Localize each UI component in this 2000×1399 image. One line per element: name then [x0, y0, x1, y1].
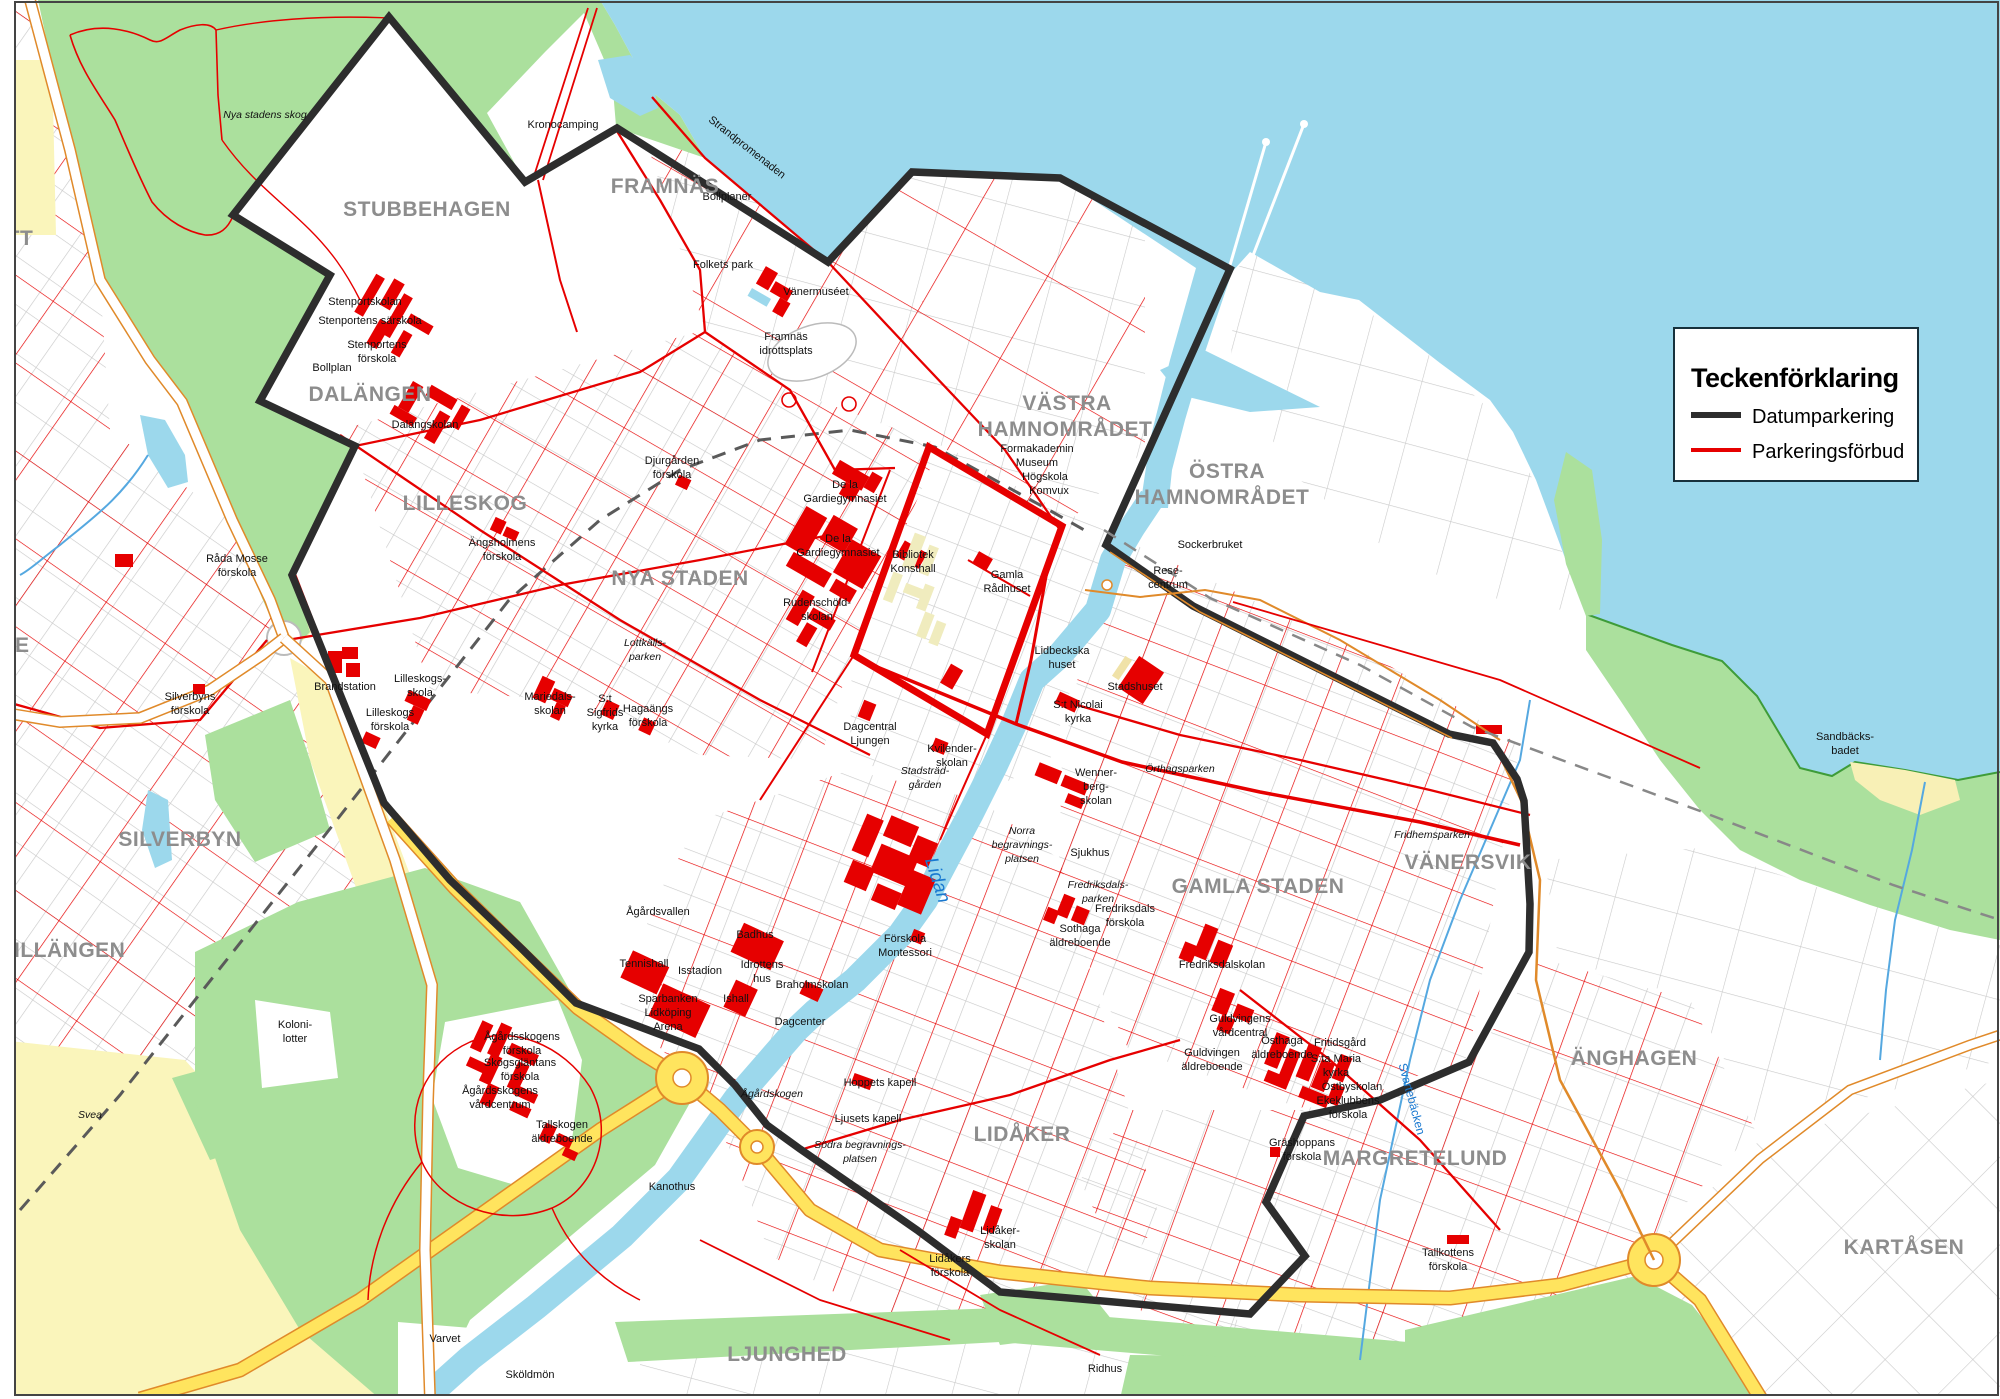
svg-text:Kronocamping: Kronocamping — [528, 119, 599, 131]
svg-text:Stenportens särskola: Stenportens särskola — [318, 315, 422, 327]
svg-text:Ågårdsskogens: Ågårdsskogens — [484, 1030, 560, 1043]
svg-text:Östbyskolan: Östbyskolan — [1322, 1081, 1383, 1093]
svg-text:förskola: förskola — [358, 353, 397, 365]
svg-text:förskola: förskola — [218, 567, 257, 579]
svg-text:MARGRETELUND: MARGRETELUND — [1323, 1147, 1508, 1170]
svg-text:Gamla: Gamla — [991, 569, 1024, 581]
svg-text:Rådhuset: Rådhuset — [983, 583, 1030, 595]
svg-text:äldreboende: äldreboende — [1049, 937, 1110, 949]
svg-text:Bollplan: Bollplan — [312, 362, 351, 374]
svg-text:Ridhus: Ridhus — [1088, 1363, 1123, 1375]
svg-text:parken: parken — [628, 651, 661, 663]
svg-text:Fredriksdals-: Fredriksdals- — [1068, 879, 1129, 891]
svg-text:Fredriksdals: Fredriksdals — [1095, 903, 1155, 915]
svg-text:badet: badet — [1831, 745, 1859, 757]
svg-text:Folkets park: Folkets park — [693, 259, 753, 271]
svg-text:Tallskogen: Tallskogen — [536, 1119, 588, 1131]
svg-text:Stenportskolan: Stenportskolan — [328, 296, 401, 308]
svg-text:S:ta Maria: S:ta Maria — [1311, 1053, 1362, 1065]
svg-text:förskola: förskola — [171, 705, 210, 717]
svg-text:Isstadion: Isstadion — [678, 965, 722, 977]
svg-text:huset: huset — [1049, 659, 1076, 671]
svg-text:STUBBEHAGEN: STUBBEHAGEN — [343, 198, 511, 221]
svg-text:Lilleskogs: Lilleskogs — [366, 707, 415, 719]
svg-text:gården: gården — [909, 779, 942, 791]
svg-text:berg-: berg- — [1083, 781, 1109, 793]
svg-text:Sothaga: Sothaga — [1060, 923, 1102, 935]
svg-text:Djurgården: Djurgården — [645, 455, 699, 467]
svg-text:Sandbäcks-: Sandbäcks- — [1816, 731, 1874, 743]
svg-text:förskola: förskola — [1283, 1151, 1322, 1163]
svg-text:Kvilender-: Kvilender- — [927, 743, 977, 755]
svg-text:Svea: Svea — [78, 1109, 102, 1121]
svg-text:Östhaga: Östhaga — [1261, 1035, 1303, 1047]
svg-text:kyrka: kyrka — [1323, 1067, 1350, 1079]
svg-text:Stadsträd-: Stadsträd- — [901, 765, 950, 777]
svg-text:Sköldmön: Sköldmön — [506, 1369, 555, 1381]
svg-text:förskola: förskola — [629, 717, 668, 729]
svg-text:De la: De la — [825, 533, 852, 545]
svg-text:förskola: förskola — [653, 469, 692, 481]
svg-text:Koloni-: Koloni- — [278, 1019, 313, 1031]
svg-text:Guldvingens: Guldvingens — [1209, 1013, 1271, 1025]
svg-text:VÄSTRA: VÄSTRA — [1022, 392, 1111, 415]
svg-text:förskola: förskola — [503, 1045, 542, 1057]
svg-text:Lottkälls-: Lottkälls- — [624, 637, 667, 649]
svg-text:Rudenschöld-: Rudenschöld- — [783, 597, 851, 609]
svg-text:Örthagsparken: Örthagsparken — [1145, 763, 1215, 775]
svg-text:Parkeringsförbud: Parkeringsförbud — [1752, 441, 1904, 463]
svg-text:Stenportens: Stenportens — [347, 339, 407, 351]
svg-text:Sparbanken: Sparbanken — [638, 993, 697, 1005]
svg-text:platsen: platsen — [1004, 853, 1039, 865]
svg-text:lotter: lotter — [283, 1033, 308, 1045]
svg-text:Hoppets kapell: Hoppets kapell — [844, 1077, 917, 1089]
svg-text:Ljungen: Ljungen — [850, 735, 889, 747]
svg-text:Dagcenter: Dagcenter — [775, 1016, 826, 1028]
svg-text:vårdcentral: vårdcentral — [1213, 1027, 1267, 1039]
svg-text:Bollplaner: Bollplaner — [703, 191, 752, 203]
svg-text:Lidköping: Lidköping — [644, 1007, 691, 1019]
svg-text:Dalängskolan: Dalängskolan — [392, 419, 459, 431]
svg-text:Formakademin: Formakademin — [1000, 443, 1073, 455]
svg-text:Montessori: Montessori — [878, 947, 932, 959]
svg-text:Silverbyns: Silverbyns — [165, 691, 216, 703]
svg-text:Ekeklubbens: Ekeklubbens — [1317, 1095, 1380, 1107]
svg-text:Tennishall: Tennishall — [620, 958, 669, 970]
svg-text:förskola: förskola — [1106, 917, 1145, 929]
svg-text:NYA STADEN: NYA STADEN — [611, 567, 748, 590]
svg-text:skolan: skolan — [534, 705, 566, 717]
svg-text:Sigfrids: Sigfrids — [587, 707, 624, 719]
svg-text:begravnings-: begravnings- — [992, 839, 1053, 851]
svg-text:Lidåker-: Lidåker- — [980, 1225, 1020, 1237]
svg-text:platsen: platsen — [842, 1153, 877, 1165]
svg-text:äldreboende: äldreboende — [531, 1133, 592, 1145]
svg-text:Ågårdsvallen: Ågårdsvallen — [626, 905, 690, 918]
svg-text:Stadshuset: Stadshuset — [1107, 681, 1162, 693]
svg-text:Museum: Museum — [1016, 457, 1058, 469]
svg-text:Teckenförklaring: Teckenförklaring — [1691, 363, 1899, 393]
svg-text:Badhus: Badhus — [736, 929, 774, 941]
svg-text:vårdcentrum: vårdcentrum — [469, 1099, 530, 1111]
svg-text:Ågårdsskogens: Ågårdsskogens — [462, 1084, 538, 1097]
svg-text:Datumparkering: Datumparkering — [1752, 406, 1894, 428]
svg-text:Gardiegymnasiet: Gardiegymnasiet — [796, 547, 879, 559]
svg-text:De la: De la — [832, 479, 859, 491]
svg-text:Förskola: Förskola — [884, 933, 927, 945]
svg-text:idrottsplats: idrottsplats — [759, 345, 813, 357]
svg-text:äldreboende: äldreboende — [1251, 1049, 1312, 1061]
svg-text:skolan: skolan — [801, 611, 833, 623]
svg-text:Fredriksdalskolan: Fredriksdalskolan — [1179, 959, 1265, 971]
svg-text:ÄNGHAGEN: ÄNGHAGEN — [1571, 1047, 1698, 1070]
svg-text:Sjukhus: Sjukhus — [1070, 847, 1110, 859]
svg-text:Lilleskogs-: Lilleskogs- — [394, 673, 446, 685]
svg-text:Gardiegymnasiet: Gardiegymnasiet — [803, 493, 886, 505]
svg-text:LJUNGHED: LJUNGHED — [727, 1343, 847, 1366]
svg-text:förskola: förskola — [931, 1267, 970, 1279]
svg-text:Lidbeckska: Lidbeckska — [1034, 645, 1090, 657]
svg-text:VÄNERSVIK: VÄNERSVIK — [1404, 851, 1531, 874]
svg-text:Lidåkers: Lidåkers — [929, 1253, 971, 1265]
svg-text:hus: hus — [753, 973, 771, 985]
svg-text:Rese-: Rese- — [1153, 565, 1183, 577]
svg-text:LILLESKOG: LILLESKOG — [403, 492, 528, 515]
svg-text:Kanothus: Kanothus — [649, 1181, 696, 1193]
svg-text:skolan: skolan — [1080, 795, 1112, 807]
svg-text:Norra: Norra — [1009, 825, 1035, 837]
svg-text:Idrottens: Idrottens — [741, 959, 784, 971]
svg-text:skolan: skolan — [984, 1239, 1016, 1251]
svg-text:förskola: förskola — [1429, 1261, 1468, 1273]
svg-text:kyrka: kyrka — [1065, 713, 1092, 725]
svg-text:Råda Mosse: Råda Mosse — [206, 553, 268, 565]
svg-text:ÖSTRA: ÖSTRA — [1189, 460, 1265, 483]
svg-text:Konsthall: Konsthall — [890, 563, 935, 575]
svg-text:Wenner-: Wenner- — [1075, 767, 1117, 779]
svg-text:Komvux: Komvux — [1029, 485, 1069, 497]
svg-text:Braholmskolan: Braholmskolan — [776, 979, 849, 991]
svg-text:S:t Nicolai: S:t Nicolai — [1053, 699, 1103, 711]
svg-text:Skogsgläntans: Skogsgläntans — [484, 1057, 557, 1069]
svg-text:HAMNOMRÅDET: HAMNOMRÅDET — [978, 417, 1153, 441]
svg-text:Sockerbruket: Sockerbruket — [1178, 539, 1243, 551]
svg-text:Hagaängs: Hagaängs — [623, 703, 674, 715]
svg-text:skola: skola — [407, 687, 434, 699]
svg-text:S:t: S:t — [598, 693, 611, 705]
svg-text:Ljusets kapell: Ljusets kapell — [835, 1113, 902, 1125]
svg-text:Ågårdskogen: Ågårdskogen — [740, 1087, 803, 1100]
svg-text:Guldvingen: Guldvingen — [1184, 1047, 1240, 1059]
svg-text:Arena: Arena — [653, 1021, 683, 1033]
svg-text:Mariedals-: Mariedals- — [524, 691, 576, 703]
svg-text:Vänermuséet: Vänermuséet — [783, 286, 848, 298]
svg-text:LILLÄNGEN: LILLÄNGEN — [1, 939, 126, 962]
svg-text:äldreboende: äldreboende — [1181, 1061, 1242, 1073]
svg-text:Högskola: Högskola — [1022, 471, 1069, 483]
svg-text:LIDÅKER: LIDÅKER — [974, 1122, 1071, 1146]
svg-text:Nya stadens skog: Nya stadens skog — [223, 109, 307, 121]
svg-text:Södra begravnings-: Södra begravnings- — [814, 1139, 906, 1151]
svg-text:förskola: förskola — [483, 551, 522, 563]
svg-text:Brandstation: Brandstation — [314, 681, 376, 693]
svg-text:förskola: förskola — [1329, 1109, 1368, 1121]
svg-text:DALÄNGEN: DALÄNGEN — [309, 383, 432, 406]
svg-text:Framnäs: Framnäs — [764, 331, 808, 343]
svg-text:Varvet: Varvet — [430, 1333, 461, 1345]
svg-text:Fridhemsparken: Fridhemsparken — [1394, 829, 1470, 841]
svg-text:SILVERBYN: SILVERBYN — [118, 828, 241, 851]
svg-text:kyrka: kyrka — [592, 721, 619, 733]
svg-text:Tallkottens: Tallkottens — [1422, 1247, 1474, 1259]
svg-text:centrum: centrum — [1148, 579, 1188, 591]
svg-text:Dagcentral: Dagcentral — [843, 721, 896, 733]
svg-text:Ishall: Ishall — [723, 993, 749, 1005]
svg-text:Gräshoppans: Gräshoppans — [1269, 1137, 1336, 1149]
svg-text:HAMNOMRÅDET: HAMNOMRÅDET — [1135, 485, 1310, 509]
svg-text:GAMLA STADEN: GAMLA STADEN — [1172, 875, 1345, 898]
svg-text:Fritidsgård: Fritidsgård — [1314, 1037, 1366, 1049]
svg-text:förskola: förskola — [501, 1071, 540, 1083]
svg-text:Bibliotek: Bibliotek — [892, 549, 934, 561]
svg-text:Ängsholmens: Ängsholmens — [469, 537, 536, 549]
svg-text:förskola: förskola — [371, 721, 410, 733]
svg-text:KARTÅSEN: KARTÅSEN — [1844, 1235, 1965, 1259]
